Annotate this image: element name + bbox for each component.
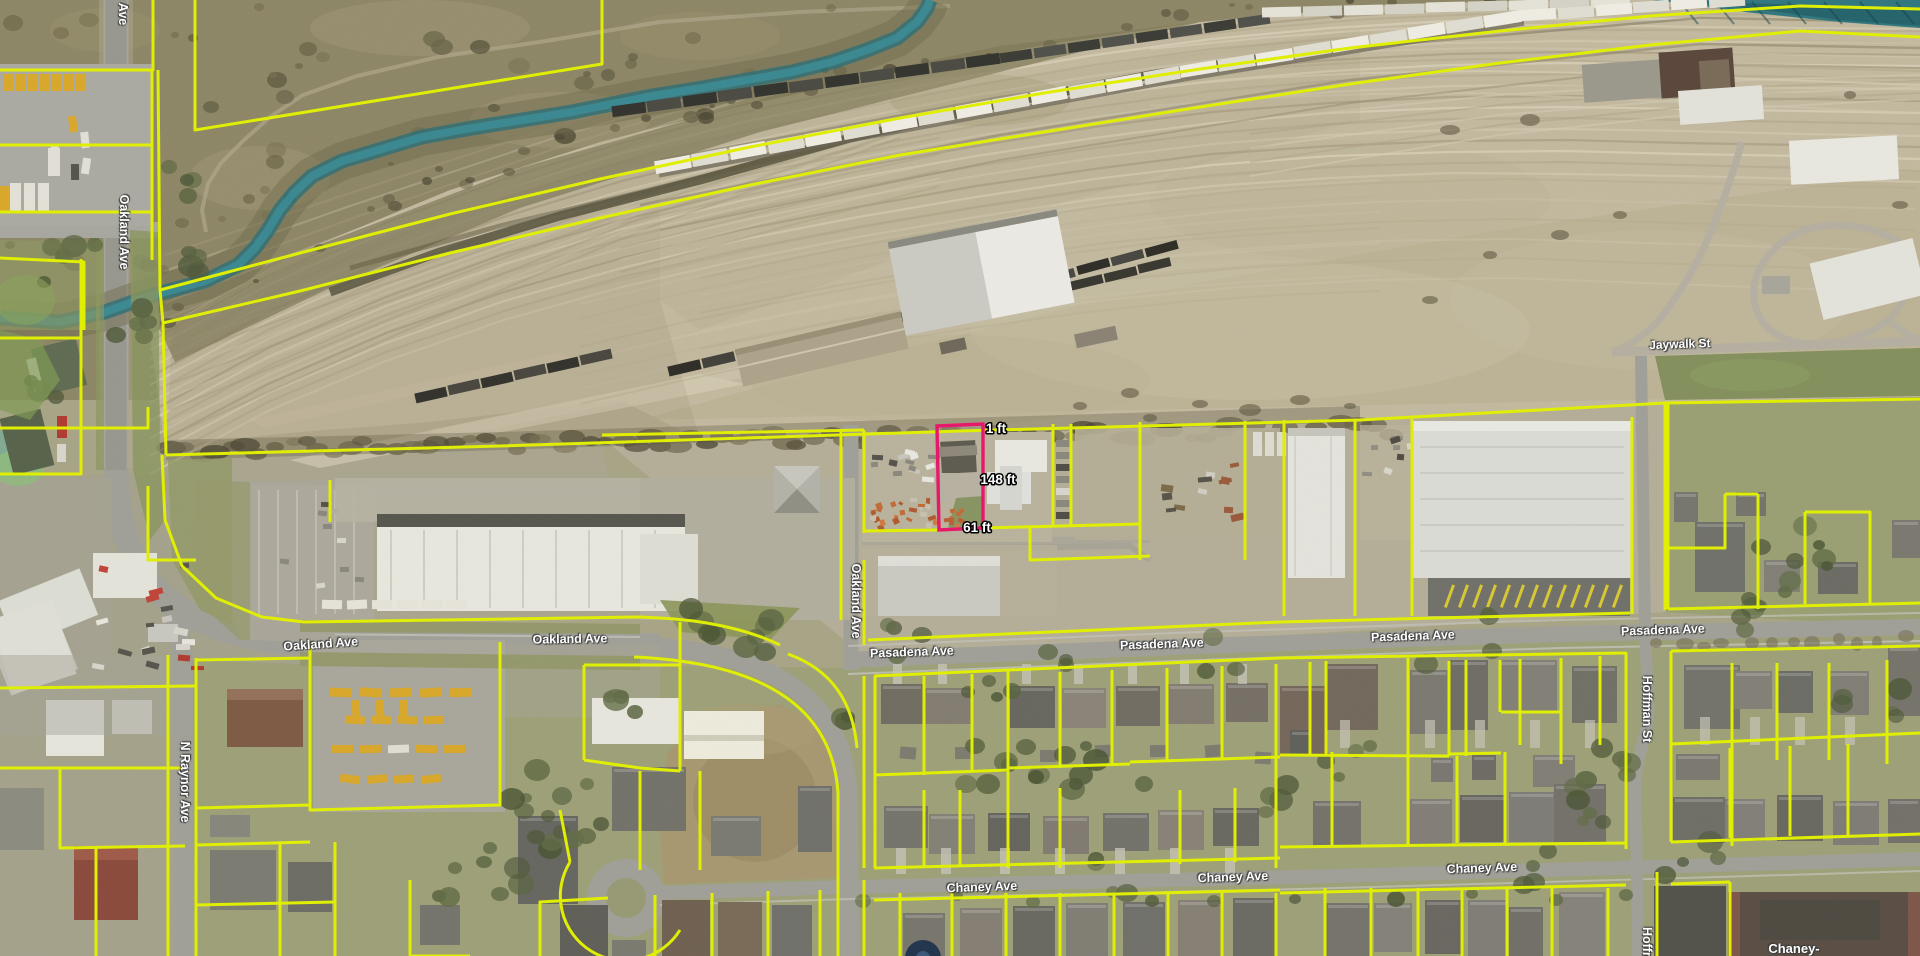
svg-text:Hoffman St: Hoffman St — [1640, 676, 1654, 744]
svg-text:Chaney Ave: Chaney Ave — [946, 879, 1017, 895]
svg-text:Oakland Ave: Oakland Ave — [532, 631, 607, 646]
svg-text:1 ft: 1 ft — [986, 421, 1007, 436]
svg-text:Pasadena Ave: Pasadena Ave — [870, 644, 954, 661]
svg-text:Pasadena Ave: Pasadena Ave — [1120, 636, 1204, 653]
svg-text:Chaney-: Chaney- — [1768, 941, 1819, 956]
svg-text:Ave: Ave — [116, 3, 130, 26]
svg-text:Jaywalk St: Jaywalk St — [1649, 336, 1711, 352]
svg-text:148 ft: 148 ft — [980, 472, 1016, 487]
svg-text:61 ft: 61 ft — [963, 520, 991, 535]
svg-text:Pasadena Ave: Pasadena Ave — [1371, 628, 1455, 645]
svg-text:N Raynor Ave: N Raynor Ave — [178, 741, 192, 822]
svg-text:Pasadena Ave: Pasadena Ave — [1621, 622, 1705, 639]
svg-text:Chaney Ave: Chaney Ave — [1446, 860, 1517, 876]
svg-text:Oakland Ave: Oakland Ave — [849, 564, 863, 639]
svg-text:Oakland Ave: Oakland Ave — [117, 195, 131, 270]
svg-text:Hoffm: Hoffm — [1640, 927, 1654, 956]
svg-text:Chaney Ave: Chaney Ave — [1197, 869, 1268, 885]
